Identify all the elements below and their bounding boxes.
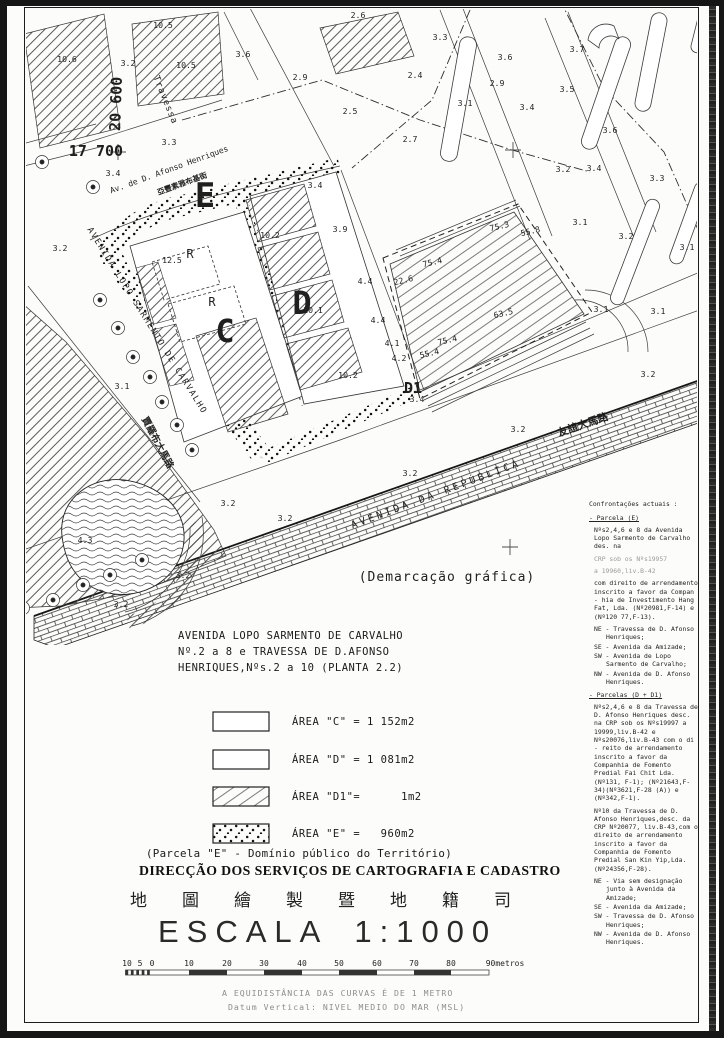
- sheet-frame: [24, 7, 699, 1023]
- sheet-binding-strip: [709, 6, 716, 1031]
- sheet-edge: [0, 1031, 724, 1038]
- sheet-edge: [719, 0, 724, 1038]
- map-sheet: 10.610.510.53.23.62.63.33.43.23.12.92.42…: [0, 0, 724, 1038]
- sheet-edge: [0, 0, 724, 6]
- sheet-edge: [0, 0, 7, 1038]
